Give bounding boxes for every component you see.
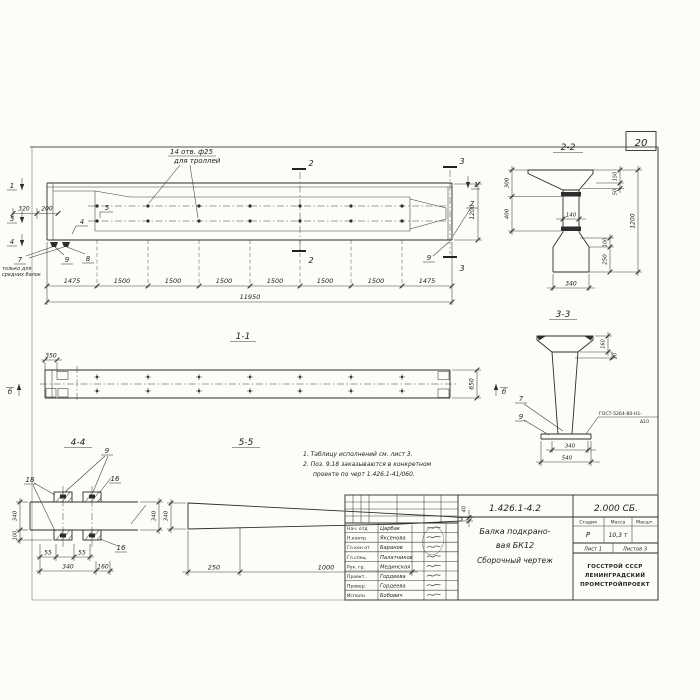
pos-16b-s44: 16 xyxy=(117,544,126,552)
header-stage: Стадия xyxy=(579,520,597,526)
pos-9-left: 9 xyxy=(65,256,70,264)
role-3: Гл.спец. xyxy=(347,555,367,561)
chain-dim-2: 1500 xyxy=(165,277,182,285)
dim-total-length: 11950 xyxy=(240,293,261,301)
name-3: Палатников xyxy=(380,555,413,561)
name-6: Гордеева xyxy=(380,584,406,590)
org-line-3: ПРОМСТРОЙПРОЕКТ xyxy=(580,580,650,588)
section-3-3: 3-3 160 30 7 9 ГОСТ-5264-80-Н1- Δ xyxy=(515,310,658,466)
pos-9-s33: 9 xyxy=(519,413,524,421)
note-line-1: 1. Таблицу исполнений см. лист 3. xyxy=(303,451,413,458)
splice-plates xyxy=(54,492,101,540)
name-2: Баранов xyxy=(380,545,403,551)
mark-b-right-text: б xyxy=(502,388,507,396)
mark-1-left: 1 xyxy=(10,182,14,190)
dim-250-section: 250 xyxy=(603,254,609,265)
pos-7-left: 7 xyxy=(18,256,23,264)
dim-1200-elevation: 1200 xyxy=(469,204,476,219)
mark-5-left: 5 xyxy=(10,215,15,223)
role-7: Исполн. xyxy=(347,593,366,599)
dim-340-s44: 340 xyxy=(62,564,74,571)
page-number-box: 20 xyxy=(626,132,656,151)
dim-340-right: 340 xyxy=(152,510,158,521)
note-middle-beams-2: средних балок xyxy=(2,272,41,278)
drawing-name-1: Балка подкрано- xyxy=(479,527,550,536)
pos-5-text: 5 xyxy=(105,204,110,212)
section-1-1-title: 1-1 xyxy=(236,332,251,342)
dim-650: 650 xyxy=(469,378,476,390)
dim-50: 50 xyxy=(613,189,619,195)
dim-1200-section: 1200 xyxy=(630,213,637,228)
dim-300: 300 xyxy=(505,177,511,188)
dim-340-s33: 340 xyxy=(565,444,576,450)
name-1: Яксенова xyxy=(379,536,406,542)
dim-340-s22: 340 xyxy=(565,281,577,288)
section-mark-3-top: 3 xyxy=(459,157,464,166)
role-5: Проект. xyxy=(347,574,366,580)
chain-dim-1: 1500 xyxy=(114,277,131,285)
dim-40: 40 xyxy=(462,506,468,512)
name-4: Мединская xyxy=(380,564,410,570)
org-line-2: ЛЕНИНГРАДСКИЙ xyxy=(585,571,646,579)
dimension-chain: 1475 1500 1500 1500 1500 1500 1500 1475 … xyxy=(45,277,455,304)
section-mark-3-bottom: 3 xyxy=(459,264,464,273)
pos-9-s44: 9 xyxy=(105,447,110,455)
section-4-4: 4-4 9 18 16 xyxy=(13,438,164,575)
name-0: Царбак xyxy=(380,526,401,532)
pos-label-4: 4 xyxy=(72,218,88,234)
dim-540: 540 xyxy=(562,456,573,462)
sheets-label: Листов 3 xyxy=(622,547,647,553)
role-1: Н.контр. xyxy=(347,536,368,542)
name-5: Гордеева xyxy=(380,574,406,580)
dim-350: 350 xyxy=(45,353,57,360)
section-5-5-title: 5-5 xyxy=(239,438,254,448)
view-mark-b-left: б xyxy=(6,384,21,396)
section-mark-2-bottom: 2 xyxy=(308,256,313,265)
header-mass: Масса xyxy=(611,520,626,526)
section-mark-2-top: 2 xyxy=(308,159,313,168)
dim-150: 150 xyxy=(613,172,619,182)
org-line-1: ГОССТРОЙ СССР xyxy=(587,562,642,570)
dim-160-s44: 160 xyxy=(97,564,109,571)
chain-dim-4: 1500 xyxy=(267,277,284,285)
doc-number: 1.426.1-4.2 xyxy=(489,504,541,514)
role-6: Провер. xyxy=(347,584,366,590)
pos-7-s33: 7 xyxy=(519,395,524,403)
role-2: Гл.кон.от xyxy=(347,545,370,551)
drawing-sheet: 20 xyxy=(0,0,700,700)
dim-340-s55: 340 xyxy=(164,510,170,521)
dim-320: 320 xyxy=(18,206,30,213)
weld-note-line1: ГОСТ-5264-80-Н1- xyxy=(599,411,642,417)
section-2-2: 2-2 140 300 400 150 50 120 xyxy=(505,143,643,291)
signature-rows: Нач. отд Царбак Н.контр. Яксенова Гл.кон… xyxy=(347,525,446,599)
note-line-2: 2. Поз. 9,18 заказываются в конкретном xyxy=(303,461,432,468)
mass-value: 10,3 т xyxy=(609,532,628,539)
main-elevation-view: 14 отв. ф25 для троллей 320 200 5 4 xyxy=(2,148,482,305)
section-cut-2: 2 2 xyxy=(292,159,314,265)
section-4-4-title: 4-4 xyxy=(71,438,86,448)
sheet-label: Лист 1 xyxy=(583,547,602,553)
bearing-plates-left: 7 9 8 только для средних балок xyxy=(2,242,94,278)
general-notes: 1. Таблицу исполнений см. лист 3. 2. Поз… xyxy=(303,451,432,478)
dim-400: 400 xyxy=(505,208,511,219)
dim-340-left: 340 xyxy=(13,510,19,521)
dim-160: 160 xyxy=(601,339,607,349)
dim-200: 200 xyxy=(41,206,53,213)
sheet-frame xyxy=(30,147,658,600)
section-2-2-title: 2-2 xyxy=(561,143,576,153)
chain-dim-3: 1500 xyxy=(216,277,233,285)
scanned-drawing-sheet: 20 xyxy=(0,0,700,700)
view-mark-b-right: б xyxy=(494,384,508,396)
note-line-3: проекте по черт 1.426.1-41/060. xyxy=(313,471,415,478)
chain-dim-6: 1500 xyxy=(368,277,385,285)
callout-line2: для троллей xyxy=(173,157,221,165)
weld-note-line2: Δ10 xyxy=(640,419,649,425)
section-3-3-title: 3-3 xyxy=(556,310,571,320)
pos-8: 8 xyxy=(86,255,91,263)
drawing-name-2: вая БК12 xyxy=(496,541,534,550)
dim-140: 140 xyxy=(566,213,577,219)
section-1-1: 1-1 350 650 б xyxy=(6,332,508,401)
name-7: Бобович xyxy=(380,593,403,599)
stage-value: Р xyxy=(586,531,591,539)
pos-16-s44: 16 xyxy=(111,475,120,483)
chain-dim-0: 1475 xyxy=(64,277,81,285)
pos-18-s44: 18 xyxy=(26,476,35,484)
chain-dim-5: 1500 xyxy=(317,277,334,285)
callout-line1: 14 отв. ф25 xyxy=(170,148,214,156)
header-scale: Масшт. xyxy=(636,520,654,526)
dim-1000: 1000 xyxy=(318,564,335,572)
pos-9-right: 9 xyxy=(427,254,432,262)
section-5-5: 5-5 340 40 250 1000 xyxy=(164,438,474,576)
dim-250-s55: 250 xyxy=(208,564,220,572)
dim-100-left: 100 xyxy=(13,531,19,541)
mark-b-left-text: б xyxy=(8,388,13,396)
dim-100: 100 xyxy=(603,238,609,248)
role-4: Рук. гр. xyxy=(347,564,365,570)
weld-note: ГОСТ-5264-80-Н1- Δ10 xyxy=(586,411,658,434)
title-block: Нач. отд Царбак Н.контр. Яксенова Гл.кон… xyxy=(345,495,658,600)
dim-55-b: 55 xyxy=(78,550,86,557)
chain-dim-7: 1475 xyxy=(419,277,436,285)
doc-series: 2.000 СБ. xyxy=(594,504,638,514)
role-0: Нач. отд xyxy=(347,526,368,532)
dim-30: 30 xyxy=(613,353,619,359)
mark-4-left: 4 xyxy=(10,238,14,246)
page-number: 20 xyxy=(635,138,648,149)
drawing-name-3: Сборочный чертеж xyxy=(477,556,553,565)
trolley-holes xyxy=(95,204,403,222)
dim-55-a: 55 xyxy=(44,550,52,557)
pos-4-text: 4 xyxy=(80,218,84,226)
